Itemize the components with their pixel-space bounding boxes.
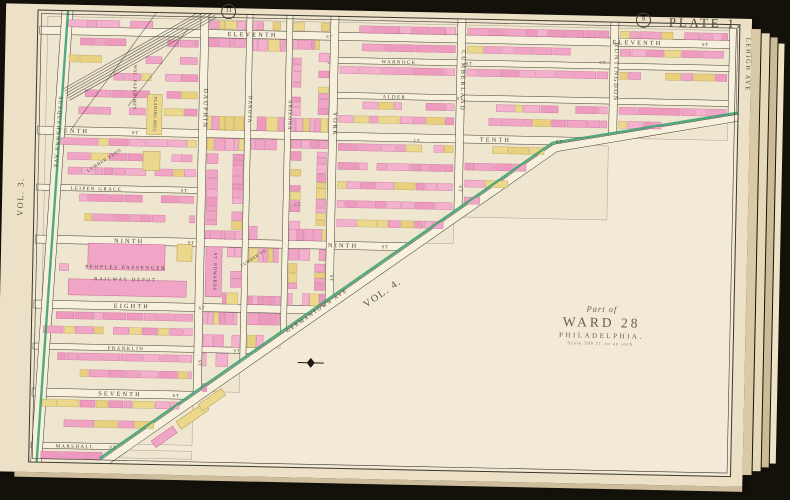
building (631, 31, 639, 38)
building (639, 108, 662, 115)
building (685, 33, 700, 40)
building (537, 71, 555, 78)
building (146, 57, 162, 64)
building (57, 353, 66, 360)
building (248, 296, 251, 305)
building (268, 39, 279, 51)
street-label-warnock: WARNOCK (381, 60, 416, 66)
building (383, 67, 399, 74)
street-suffix: ST (382, 244, 389, 249)
building (170, 328, 183, 335)
building (213, 335, 224, 347)
building (500, 70, 519, 77)
building (227, 293, 238, 305)
building (291, 151, 301, 160)
building (435, 202, 452, 209)
building (599, 107, 607, 114)
building (208, 312, 213, 324)
building (239, 139, 244, 151)
building (666, 73, 681, 80)
building (360, 182, 374, 189)
building (315, 264, 325, 272)
building (537, 30, 547, 37)
building (67, 20, 88, 27)
building (98, 20, 120, 27)
building (257, 117, 266, 131)
building (445, 69, 455, 76)
building (319, 53, 329, 62)
building (210, 21, 219, 29)
building (464, 180, 484, 187)
building (311, 140, 319, 148)
building (519, 70, 535, 77)
building (230, 39, 234, 48)
building (566, 30, 584, 37)
building (294, 22, 305, 30)
building (141, 371, 159, 378)
building (259, 313, 269, 325)
building (317, 174, 327, 182)
building (375, 182, 393, 189)
building (248, 313, 259, 325)
building (142, 328, 157, 335)
building (232, 212, 242, 221)
building (96, 400, 108, 407)
street-label-seventh: SEVENTH (98, 390, 142, 398)
street-label-ninth: NINTH (328, 242, 358, 250)
building (234, 117, 244, 131)
building (548, 30, 565, 37)
building (531, 47, 552, 54)
building (164, 109, 183, 116)
building (232, 198, 242, 204)
building (375, 201, 385, 208)
building (232, 335, 240, 347)
building (681, 74, 692, 81)
building (146, 139, 168, 146)
building (69, 55, 79, 62)
building (293, 40, 297, 49)
building (316, 208, 326, 213)
building (278, 117, 283, 131)
building (79, 194, 87, 201)
building (318, 109, 328, 114)
building (188, 372, 191, 379)
building (467, 46, 483, 53)
building (431, 27, 446, 34)
building (467, 69, 477, 76)
building (114, 73, 123, 80)
building (291, 169, 301, 176)
ward-name: WARD 28 (522, 313, 682, 332)
landmark-building (177, 244, 192, 261)
building (316, 183, 326, 189)
building (258, 39, 268, 51)
building (289, 249, 299, 260)
street-label-cumberland: CUMBERLAND (459, 50, 467, 111)
building (130, 328, 142, 335)
building (280, 40, 285, 52)
building (209, 38, 217, 47)
building (89, 370, 107, 377)
building (124, 401, 132, 408)
building (41, 451, 61, 458)
street-suffix: ST (458, 185, 463, 192)
building (490, 29, 504, 36)
building (226, 231, 235, 239)
building (103, 312, 126, 319)
building (317, 158, 327, 164)
building (316, 189, 326, 199)
building (340, 66, 359, 73)
building (315, 118, 320, 132)
building (275, 296, 280, 305)
building (61, 138, 75, 145)
building (640, 32, 661, 39)
building (386, 201, 400, 208)
building (183, 329, 192, 336)
building (194, 40, 198, 47)
building (116, 214, 130, 221)
building (318, 99, 328, 109)
building (496, 164, 513, 171)
building (370, 116, 378, 123)
building (337, 181, 346, 188)
building (386, 26, 400, 33)
street-label-huntingdon: HUNTINGDON (612, 42, 620, 102)
building (180, 196, 193, 203)
building (219, 21, 225, 29)
building (567, 120, 587, 127)
building (64, 420, 75, 427)
building (167, 91, 181, 98)
building (597, 72, 608, 79)
building (255, 139, 265, 150)
city-block (248, 139, 284, 241)
building (206, 220, 217, 225)
building (252, 296, 258, 305)
building (597, 31, 609, 38)
building (76, 420, 94, 427)
building (347, 182, 360, 189)
building (226, 21, 237, 29)
building (108, 370, 126, 377)
building (496, 105, 514, 112)
building (113, 327, 128, 334)
building (232, 184, 242, 189)
building (484, 46, 501, 53)
building (233, 154, 243, 159)
building (574, 71, 595, 78)
street-label-tenth: TENTH (480, 136, 511, 144)
building (79, 107, 98, 114)
building (502, 47, 513, 54)
street-label-ninth: NINTH (114, 238, 144, 246)
building (99, 90, 111, 97)
building (316, 199, 326, 207)
building (289, 263, 297, 272)
street-label-franklin: FRANKLIN (108, 347, 145, 353)
building (76, 138, 98, 145)
building (189, 216, 194, 223)
building (298, 40, 310, 49)
building (400, 117, 412, 124)
building (300, 249, 310, 260)
building (127, 370, 140, 377)
building (377, 163, 387, 170)
building (101, 353, 120, 360)
street-label-dauphin: DAUPHIN (201, 88, 209, 129)
street-suffix: ST (197, 360, 202, 367)
building (315, 273, 325, 278)
building (80, 400, 95, 407)
building (526, 29, 536, 36)
building (42, 399, 57, 406)
plate-title: PLATE 1. (646, 15, 766, 33)
building (413, 117, 425, 124)
building (112, 90, 128, 97)
building (319, 250, 325, 261)
building (465, 163, 475, 170)
building (318, 94, 328, 99)
building (621, 31, 630, 38)
street-label-eleventh: ELEVENTH (228, 31, 278, 39)
building (181, 155, 192, 162)
building (80, 38, 94, 45)
building (416, 45, 433, 52)
building (232, 176, 242, 184)
building (169, 140, 187, 147)
building (67, 353, 77, 360)
building (357, 220, 377, 227)
building (310, 294, 319, 306)
building (93, 214, 115, 221)
building (251, 139, 255, 149)
building (585, 30, 596, 37)
building (142, 74, 151, 81)
map-clip-group: ELEVENTHSTELEVENTHSTWARNOCKSTALDERSTTENT… (31, 3, 741, 480)
building (227, 248, 234, 257)
building (237, 21, 246, 29)
building (207, 170, 218, 178)
building (104, 168, 113, 175)
building (381, 144, 396, 151)
building (178, 372, 187, 379)
building (59, 264, 68, 271)
building (249, 226, 257, 240)
building (233, 165, 243, 175)
building (216, 353, 228, 366)
building (394, 45, 415, 52)
building (515, 105, 522, 112)
building (222, 293, 226, 304)
building (292, 102, 300, 107)
building (267, 117, 278, 131)
street-label-marshall: MARSHALL (56, 445, 95, 451)
building (430, 164, 443, 171)
building (109, 139, 128, 146)
building (180, 57, 197, 64)
building (99, 107, 111, 114)
building (503, 119, 524, 126)
building (95, 327, 104, 334)
building (363, 102, 378, 109)
building (338, 143, 357, 150)
building (172, 155, 180, 162)
building (394, 103, 402, 110)
atlas-page: ELEVENTHSTELEVENTHSTWARNOCKSTALDERSTTENT… (0, 3, 752, 487)
building (337, 219, 357, 226)
building (80, 370, 88, 377)
building (184, 109, 197, 116)
building (62, 452, 85, 459)
building (121, 354, 143, 361)
building (233, 160, 243, 165)
building (406, 145, 422, 152)
building (273, 249, 278, 263)
building (158, 328, 169, 335)
building (84, 214, 91, 221)
building (105, 38, 126, 45)
building (401, 221, 414, 228)
building (301, 140, 310, 148)
building (445, 118, 454, 125)
building (68, 167, 82, 174)
building (662, 32, 673, 39)
building (524, 119, 532, 126)
building (317, 152, 327, 157)
building (360, 26, 373, 33)
building (337, 200, 345, 207)
building (161, 196, 179, 203)
building (388, 163, 410, 170)
building (205, 230, 210, 238)
building (412, 27, 429, 34)
building (489, 119, 502, 126)
building (401, 202, 414, 209)
building (219, 116, 225, 130)
building (207, 154, 218, 164)
building (181, 92, 197, 99)
building (292, 107, 300, 115)
building (378, 102, 393, 109)
building (219, 313, 224, 325)
building (67, 152, 90, 159)
building (273, 22, 281, 30)
street-suffix: ST (132, 130, 139, 135)
building (434, 145, 443, 152)
building (619, 121, 627, 128)
building (632, 49, 646, 56)
building (576, 106, 599, 113)
building (161, 355, 178, 362)
building (541, 106, 558, 113)
building (664, 50, 681, 57)
building (322, 229, 326, 241)
building (288, 293, 292, 305)
photographed-atlas-page: ELEVENTHSTELEVENTHSTWARNOCKSTALDERSTTENT… (0, 0, 790, 500)
building (114, 168, 125, 175)
building (215, 138, 225, 150)
building (647, 50, 664, 57)
building (152, 215, 165, 222)
building (204, 312, 208, 324)
building (56, 311, 74, 318)
building (504, 29, 525, 36)
building (523, 105, 540, 112)
street-suffix: ST (702, 42, 709, 47)
street-suffix: ST (109, 445, 116, 450)
map-annotation: CT. (414, 138, 421, 143)
building (476, 163, 495, 170)
building (270, 296, 274, 305)
building (212, 116, 219, 130)
building (446, 104, 454, 111)
building (444, 146, 453, 153)
building (319, 71, 329, 78)
building (95, 420, 118, 427)
building (426, 103, 446, 110)
page-tilt-wrapper: ELEVENTHSTELEVENTHSTWARNOCKSTALDERSTTENT… (0, 3, 790, 500)
building (99, 138, 108, 145)
building (290, 221, 300, 230)
building (143, 354, 159, 361)
building (556, 71, 574, 78)
building (378, 220, 388, 227)
building (206, 206, 217, 211)
building (703, 51, 724, 58)
building (157, 314, 173, 321)
building (426, 117, 444, 124)
building (85, 452, 102, 459)
building (221, 231, 225, 239)
building (178, 355, 191, 362)
building (140, 215, 151, 222)
building (354, 116, 369, 123)
building (436, 68, 444, 75)
building (373, 26, 385, 33)
building (425, 183, 437, 190)
building (155, 402, 169, 409)
building (413, 68, 435, 75)
atlas-map: ELEVENTHSTELEVENTHSTWARNOCKSTALDERSTTENT… (0, 3, 752, 487)
building (259, 22, 264, 30)
building (321, 119, 328, 133)
building (75, 326, 94, 333)
building (111, 195, 124, 202)
building (315, 40, 319, 49)
building (181, 74, 198, 81)
building (587, 121, 600, 128)
street-suffix: ST (329, 275, 334, 282)
street-suffix: ST (326, 34, 333, 39)
volume-left-label: VOL. 3. (15, 173, 26, 221)
building (378, 116, 399, 123)
building (416, 183, 424, 190)
building (601, 121, 607, 128)
building (695, 109, 707, 116)
building (258, 296, 262, 305)
building (174, 314, 193, 321)
map-annotation: CT. (599, 60, 606, 65)
building (293, 58, 301, 64)
building (290, 185, 300, 191)
building (422, 164, 429, 171)
building (620, 49, 631, 56)
building (293, 82, 301, 87)
street-label-tenth: TENTH (58, 127, 89, 135)
building (303, 294, 310, 306)
